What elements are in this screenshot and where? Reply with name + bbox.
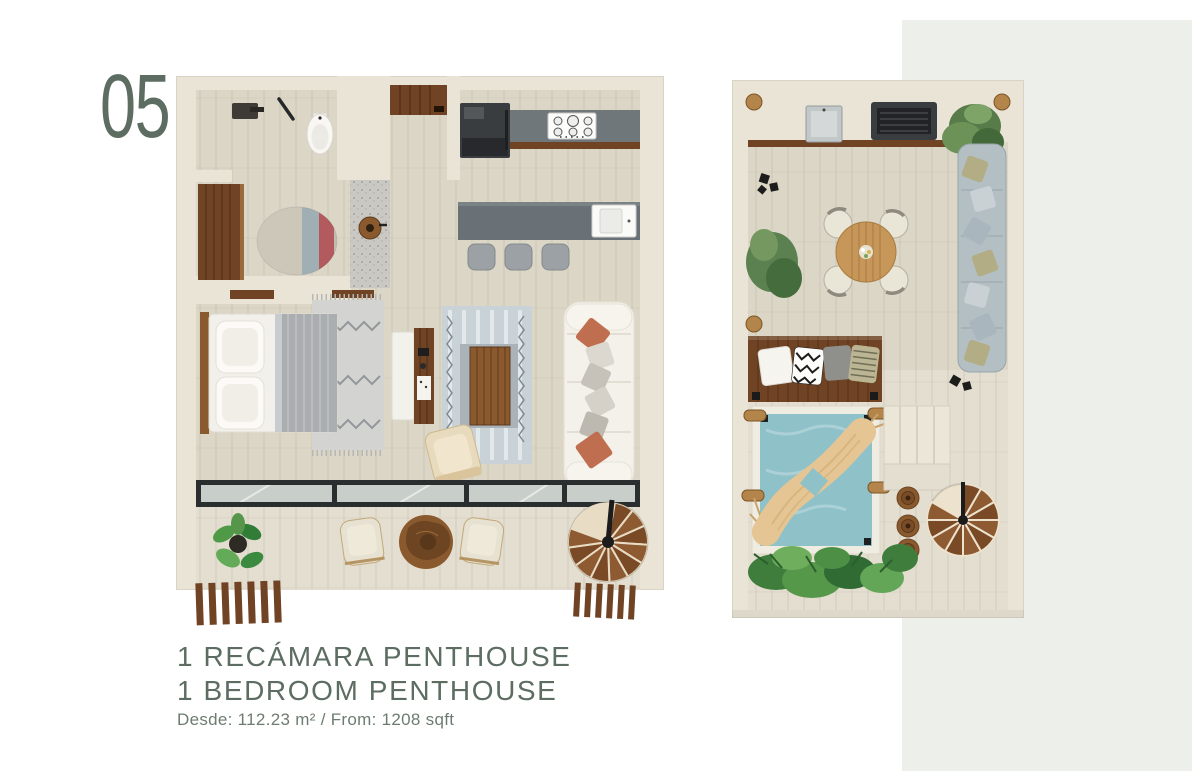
sectional-sofa xyxy=(958,144,1006,372)
plan-title-spanish: 1 RECÁMARA PENTHOUSE xyxy=(177,640,572,674)
unit-number: 05 xyxy=(100,62,169,152)
kitchen-island xyxy=(458,202,640,240)
pool-steps xyxy=(884,406,950,490)
plan-title-english: 1 BEDROOM PENTHOUSE xyxy=(177,674,572,708)
bar-stools xyxy=(468,244,569,270)
tv-console xyxy=(392,328,434,424)
brochure-page: 05 xyxy=(0,0,1192,771)
outdoor-sink xyxy=(806,106,842,142)
live-edge-table xyxy=(399,515,453,569)
refrigerator xyxy=(460,103,510,158)
glass-railing xyxy=(196,480,640,507)
living-room xyxy=(423,302,634,488)
entry-closet xyxy=(390,85,447,115)
rooftop-floor-plan xyxy=(732,80,1024,618)
terrace-chair xyxy=(459,516,505,566)
dining-table xyxy=(836,222,896,282)
cooktop xyxy=(548,113,596,139)
bbq-grill xyxy=(871,102,937,140)
plan-title: 1 RECÁMARA PENTHOUSE 1 BEDROOM PENTHOUSE xyxy=(177,640,572,708)
rooftop-spiral-staircase xyxy=(927,482,999,556)
toilet xyxy=(307,113,333,154)
terrace-chair xyxy=(339,516,385,566)
main-level-floor-plan xyxy=(176,76,664,626)
wardrobe xyxy=(198,184,244,280)
coffee-table xyxy=(460,344,518,428)
bed xyxy=(200,312,337,434)
sofa xyxy=(564,302,634,488)
plan-area-text: Desde: 112.23 m² / From: 1208 sqft xyxy=(177,710,454,730)
daybed xyxy=(748,336,882,402)
